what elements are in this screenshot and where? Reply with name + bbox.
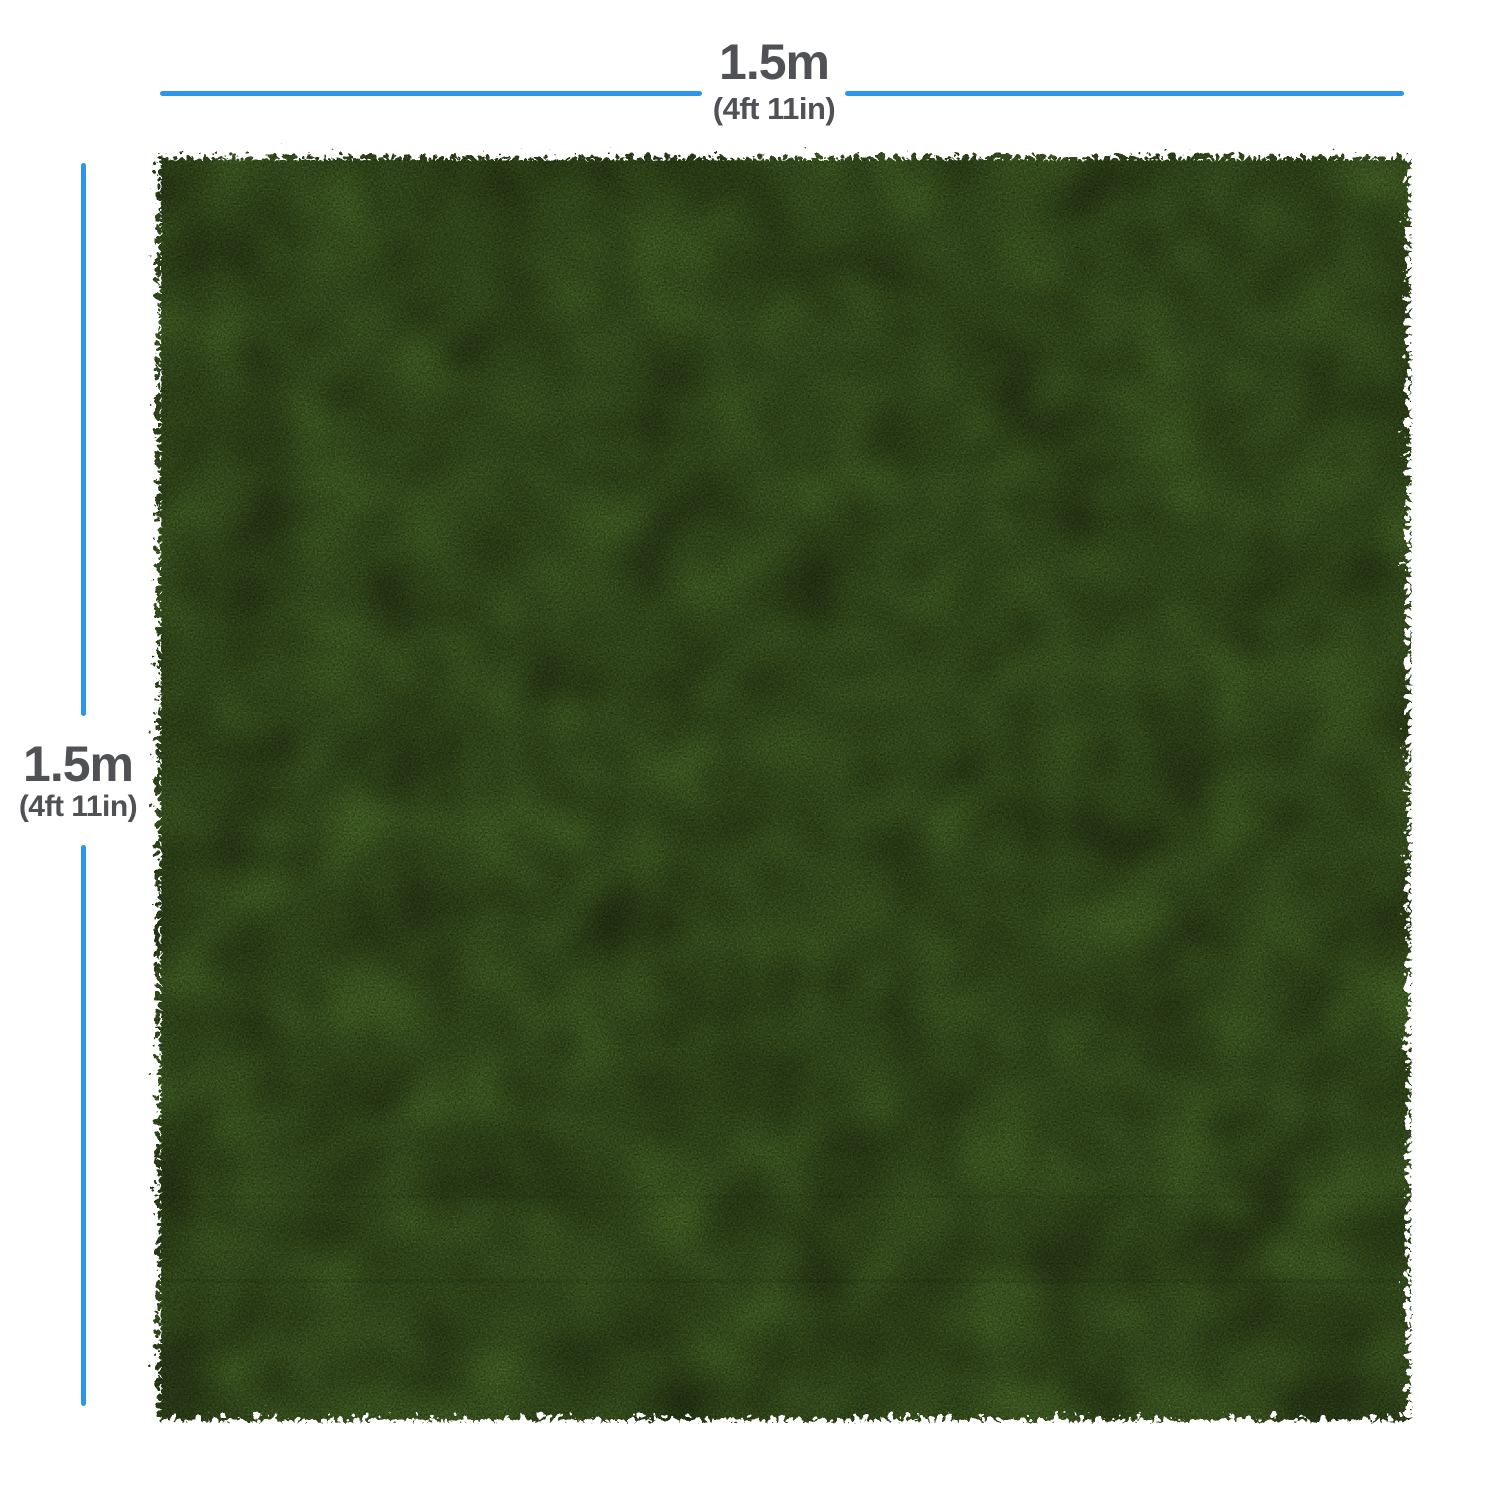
width-imperial-value: (4ft 11in)	[614, 92, 934, 125]
width-metric-value: 1.5m	[614, 39, 934, 86]
turf-seam-line	[158, 1279, 1398, 1283]
grass-texture-area	[153, 152, 1403, 1414]
turf-seam-line	[158, 1195, 1398, 1198]
product-dimension-image: 1.5m (4ft 11in) 1.5m (4ft 11in)	[0, 0, 1500, 1500]
grass-turf-swatch	[128, 127, 1428, 1439]
left-dimension-line-top	[81, 163, 86, 716]
left-dimension-line-bottom	[81, 845, 86, 1406]
width-dimension-label: 1.5m (4ft 11in)	[614, 39, 934, 125]
